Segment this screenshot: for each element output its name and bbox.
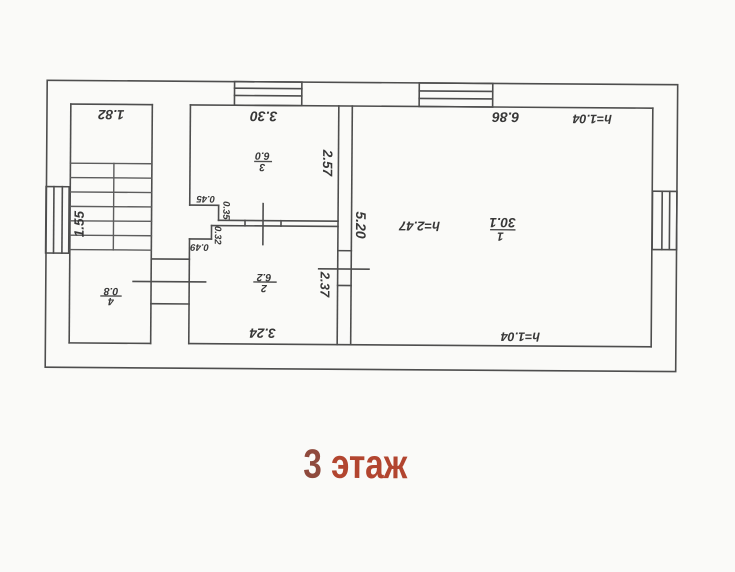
svg-text:3.30: 3.30 — [250, 108, 278, 124]
svg-text:0.35: 0.35 — [220, 201, 231, 220]
svg-text:0.32: 0.32 — [212, 226, 223, 245]
svg-text:2: 2 — [261, 282, 268, 294]
svg-text:6.0: 6.0 — [255, 149, 270, 161]
svg-text:h=1.04: h=1.04 — [573, 112, 612, 126]
svg-text:1.82: 1.82 — [97, 107, 124, 122]
svg-text:5.20: 5.20 — [353, 211, 369, 239]
svg-text:4: 4 — [108, 295, 115, 307]
svg-text:3 этаж: 3 этаж — [303, 441, 408, 488]
svg-text:6.2: 6.2 — [257, 271, 272, 283]
svg-text:3.24: 3.24 — [249, 325, 276, 340]
svg-text:3: 3 — [259, 161, 265, 173]
svg-text:30.1: 30.1 — [489, 215, 515, 230]
svg-text:0.45: 0.45 — [196, 193, 215, 204]
svg-text:h=1.04: h=1.04 — [501, 329, 540, 343]
svg-text:1.55: 1.55 — [72, 210, 87, 237]
svg-text:0.49: 0.49 — [190, 241, 209, 252]
svg-text:h=2.47: h=2.47 — [398, 218, 440, 233]
svg-text:1: 1 — [497, 229, 504, 243]
svg-text:2.57: 2.57 — [320, 149, 335, 178]
svg-text:2.37: 2.37 — [317, 271, 332, 298]
svg-text:6.86: 6.86 — [492, 109, 520, 125]
